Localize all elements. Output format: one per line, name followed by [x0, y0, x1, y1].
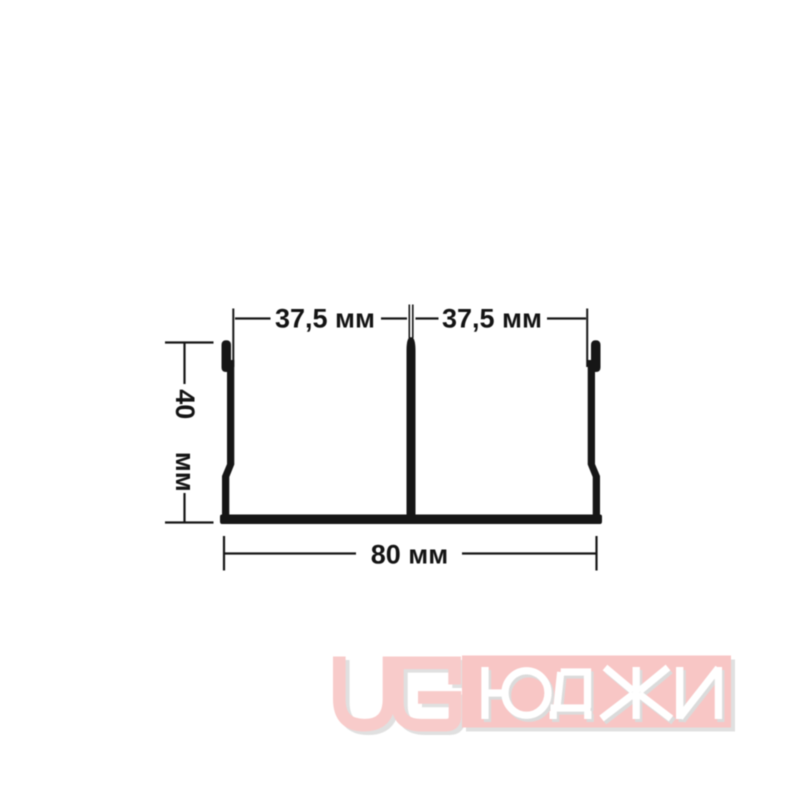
- svg-text:80 мм: 80 мм: [371, 540, 448, 570]
- svg-text:37,5 мм: 37,5 мм: [442, 304, 542, 334]
- svg-text:40 мм: 40 мм: [170, 389, 200, 491]
- svg-text:37,5 мм: 37,5 мм: [275, 304, 375, 334]
